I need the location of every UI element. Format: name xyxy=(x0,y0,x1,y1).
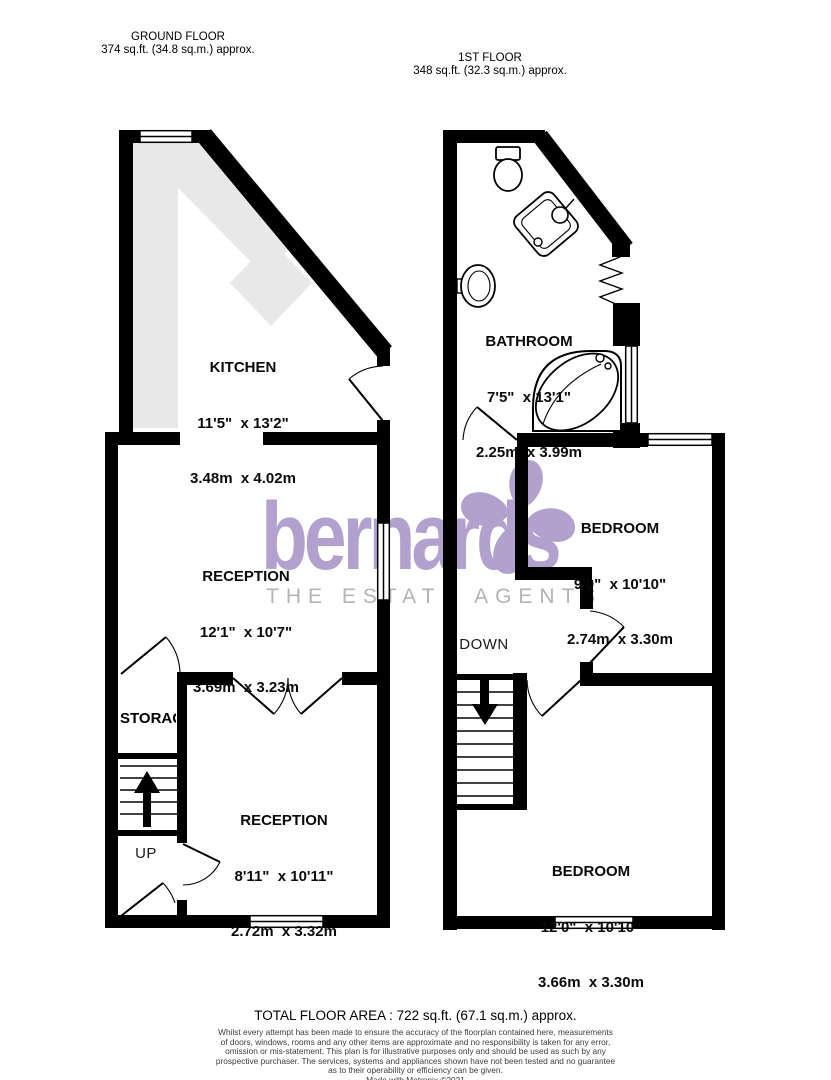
kitchen-diagonal-wall xyxy=(204,135,385,352)
room-imperial: 7'5" x 13'1" xyxy=(476,389,582,408)
room-metric: 2.74m x 3.30m xyxy=(567,631,673,650)
reception2-label: RECEPTION 8'11" x 10'11" 2.72m x 3.32m xyxy=(231,775,337,979)
room-metric: 3.48m x 4.02m xyxy=(190,470,296,489)
room-name: BATHROOM xyxy=(476,333,582,352)
bathroom-label: BATHROOM 7'5" x 13'1" 2.25m x 3.99m xyxy=(476,296,582,500)
kitchen-label: KITCHEN 11'5" x 13'2" 3.48m x 4.02m xyxy=(190,322,296,526)
storage-door xyxy=(121,637,180,674)
room-imperial: 11'5" x 13'2" xyxy=(190,415,296,434)
floorplan-page: GROUND FLOOR 374 sq.ft. (34.8 sq.m.) app… xyxy=(0,0,831,1080)
reception1-label: RECEPTION 12'1" x 10'7" 3.69m x 3.23m xyxy=(193,531,299,735)
room-imperial: 12'0" x 10'10" xyxy=(538,919,644,938)
kitchen-window xyxy=(140,131,192,143)
room-name: RECEPTION xyxy=(193,568,299,587)
total-floor-area: TOTAL FLOOR AREA : 722 sq.ft. (67.1 sq.m… xyxy=(0,1008,831,1023)
reception1-window xyxy=(378,523,390,600)
room-metric: 2.25m x 3.99m xyxy=(476,444,582,463)
room-metric: 3.66m x 3.30m xyxy=(538,974,644,993)
down-label: DOWN xyxy=(459,636,509,653)
room-name: BEDROOM xyxy=(538,863,644,882)
toilet-icon xyxy=(494,147,522,191)
storage-label: STORAGE xyxy=(120,709,176,728)
disclaimer: Whilst every attempt has been made to en… xyxy=(0,1028,831,1080)
room-name: BEDROOM xyxy=(567,520,673,539)
opening-zigzag xyxy=(600,257,622,305)
up-arrow-icon xyxy=(134,771,160,827)
room-name: STORAGE xyxy=(120,709,176,728)
up-label: UP xyxy=(135,845,157,862)
bathroom-window xyxy=(626,346,638,423)
bedroom1-label: BEDROOM 9'0" x 10'10" 2.74m x 3.30m xyxy=(567,483,673,687)
metropix-credit: Made with Metropix ©2021 xyxy=(0,1076,831,1080)
room-metric: 2.72m x 3.32m xyxy=(231,923,337,942)
room-imperial: 9'0" x 10'10" xyxy=(567,576,673,595)
room-name: KITCHEN xyxy=(190,359,296,378)
room-imperial: 12'1" x 10'7" xyxy=(193,624,299,643)
kitchen-door xyxy=(349,366,383,421)
room-metric: 3.69m x 3.23m xyxy=(193,679,299,698)
bedroom2-label: BEDROOM 12'0" x 10'10" 3.66m x 3.30m xyxy=(538,826,644,1030)
bedroom1-window xyxy=(648,434,712,446)
room-name: RECEPTION xyxy=(231,812,337,831)
floorplan-drawing xyxy=(0,0,831,1080)
shower-icon xyxy=(511,189,581,259)
room-imperial: 8'11" x 10'11" xyxy=(231,868,337,887)
